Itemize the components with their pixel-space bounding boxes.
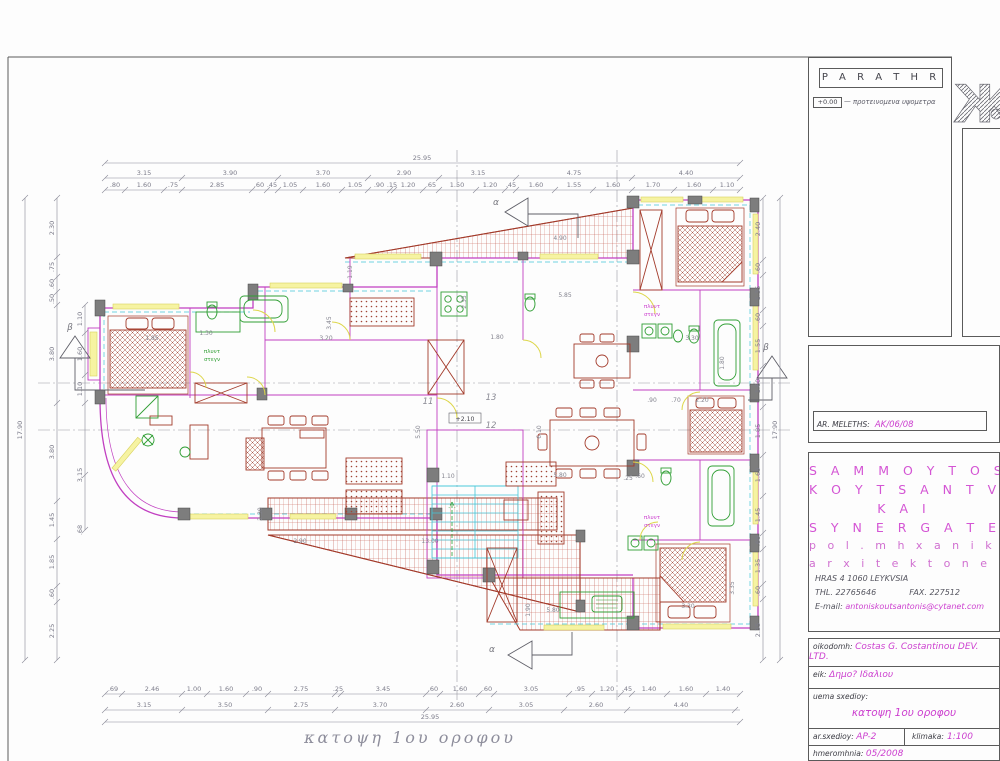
table-row-eik: eik: Δημο? Ιδαλιου [809, 667, 999, 689]
dim-row-right-overall: 17.90 [771, 421, 779, 440]
svg-text:2.35: 2.35 [461, 295, 468, 309]
svg-text:+2.10: +2.10 [456, 416, 475, 423]
svg-text:.45: .45 [506, 181, 516, 189]
svg-text:1.85: 1.85 [754, 424, 762, 438]
svg-text:5.85: 5.85 [558, 292, 572, 299]
firm-tel: THL. 22765646 [815, 588, 876, 597]
svg-text:2.35: 2.35 [754, 623, 762, 637]
toilet [207, 294, 699, 485]
svg-text:3.50: 3.50 [218, 701, 232, 709]
svg-text:.60: .60 [754, 313, 762, 323]
svg-text:β: β [66, 323, 73, 333]
svg-text:1.55: 1.55 [567, 181, 581, 189]
svg-text:.65: .65 [426, 181, 436, 189]
svg-text:1.85: 1.85 [48, 555, 56, 569]
svg-text:1.10: 1.10 [76, 382, 84, 396]
section-marker-alpha-bottom [508, 632, 572, 669]
svg-text:6.10: 6.10 [536, 425, 543, 439]
firm-name-line1: S A M M O Y T O S [809, 461, 999, 480]
meleths-panel: AR. MELETHS: AK/06/08 [808, 345, 1000, 443]
scale-value: 1:100 [947, 732, 973, 742]
dim-row-left-overall: 17.90 [16, 421, 24, 440]
svg-text:3.70: 3.70 [373, 701, 387, 709]
svg-text:.70: .70 [671, 397, 681, 404]
subject-label: uema sxedioy: [809, 689, 868, 701]
eik-label: eik: [809, 667, 827, 679]
svg-text:1.80: 1.80 [490, 334, 504, 341]
firm-profession-1: p o l . m h x a n i k o i [809, 537, 999, 555]
table-row-number-scale: ar.sxedioy: AP-2 klimaka: 1:100 [809, 729, 999, 746]
bed [688, 396, 744, 454]
table-row-date: hmeromhnia: 05/2008 [809, 746, 999, 761]
svg-text:1.05: 1.05 [348, 181, 362, 189]
svg-text:1.60: 1.60 [453, 685, 467, 693]
side-strip-panel [962, 128, 1000, 337]
svg-text:1.30: 1.30 [199, 330, 213, 337]
svg-text:1.35: 1.35 [754, 559, 762, 573]
svg-text:1.00: 1.00 [187, 685, 201, 693]
bed [676, 208, 744, 286]
elevation-symbol: +0.00 [813, 97, 842, 108]
svg-text:.60: .60 [48, 589, 56, 599]
svg-text:1.55: 1.55 [754, 339, 762, 353]
dim-row-top-1: 3.153.903.702.903.154.754.40 [137, 169, 693, 177]
svg-text:3.15: 3.15 [137, 701, 151, 709]
svg-text:στεγν: στεγν [204, 357, 220, 363]
svg-text:.90: .90 [374, 181, 384, 189]
svg-text:.60: .60 [754, 586, 762, 596]
svg-text:3.45: 3.45 [376, 685, 390, 693]
dim-row-bottom-2: 3.153.502.753.702.603.052.604.40 [137, 701, 688, 709]
svg-text:.60: .60 [254, 181, 264, 189]
svg-text:1.70: 1.70 [646, 181, 660, 189]
svg-text:1.05: 1.05 [283, 181, 297, 189]
firm-fax: FAX. 227512 [909, 588, 960, 597]
svg-text:3.80: 3.80 [48, 347, 56, 361]
svg-text:.25: .25 [333, 685, 343, 693]
cabinet [150, 416, 264, 470]
svg-text:12: 12 [486, 421, 497, 431]
svg-text:1.60: 1.60 [606, 181, 620, 189]
svg-text:.60: .60 [48, 279, 56, 289]
svg-text:13.00: 13.00 [421, 538, 438, 545]
svg-text:2.40: 2.40 [754, 222, 762, 236]
svg-text:πλυντ: πλυντ [644, 304, 661, 310]
svg-text:πλυντ: πλυντ [644, 515, 661, 521]
svg-text:1.20: 1.20 [600, 685, 614, 693]
dim-row-top-2: .801.60.752.85.60.451.051.601.05.90.151.… [110, 181, 734, 189]
svg-text:α: α [489, 645, 495, 655]
svg-text:1.90: 1.90 [525, 603, 532, 617]
drawing-sheet: α α β β [0, 0, 1000, 761]
firm-phone-fax: THL. 22765646 FAX. 227512 [809, 586, 999, 600]
svg-text:17.90: 17.90 [771, 421, 779, 440]
svg-text:4.40: 4.40 [679, 169, 693, 177]
svg-text:4.75: 4.75 [567, 169, 581, 177]
svg-text:1.60: 1.60 [137, 181, 151, 189]
svg-text:2.75: 2.75 [294, 701, 308, 709]
dim-row-bottom-overall: 25.95 [421, 713, 440, 721]
svg-text:στεγν: στεγν [644, 523, 660, 529]
svg-text:1.60: 1.60 [76, 347, 84, 361]
firm-name-line3: K A I [809, 499, 999, 518]
svg-text:2.60: 2.60 [450, 701, 464, 709]
svg-text:1.50: 1.50 [450, 181, 464, 189]
svg-text:.60: .60 [754, 263, 762, 273]
svg-text:.60: .60 [635, 473, 645, 480]
svg-text:1.60: 1.60 [679, 685, 693, 693]
meleths-value: AK/06/08 [875, 420, 914, 430]
svg-text:.75: .75 [48, 262, 56, 272]
svg-text:2.60: 2.60 [589, 701, 603, 709]
svg-text:1.60: 1.60 [754, 468, 762, 482]
svg-text:25.95: 25.95 [413, 154, 432, 162]
svg-text:1.40: 1.40 [716, 685, 730, 693]
dining-table [574, 334, 630, 388]
table-row-subject: uema sxedioy: κατοψη 1ου οροφου [809, 689, 999, 729]
firm-email-label: E-mail: [815, 602, 843, 611]
svg-text:.68: .68 [76, 525, 84, 535]
svg-text:3.90: 3.90 [223, 169, 237, 177]
firm-panel: S A M M O Y T O S K O Y T S A N T V N H … [808, 452, 1000, 632]
svg-text:.45: .45 [267, 181, 277, 189]
drawing-number-value: AP-2 [856, 732, 876, 742]
svg-text:17.90: 17.90 [16, 421, 24, 440]
svg-text:3.35: 3.35 [729, 581, 736, 595]
dim-row-bottom-1: .692.461.001.60.902.75.253.45.601.60.603… [108, 685, 730, 693]
eik-value: Δημο? Ιδαλιου [829, 670, 893, 680]
svg-text:1.45: 1.45 [48, 513, 56, 527]
firm-email: antoniskoutsantonis@cytanet.com [845, 602, 984, 611]
svg-text:1.45: 1.45 [754, 508, 762, 522]
building-label: oikodomh: [809, 639, 853, 651]
svg-text:.75: .75 [168, 181, 178, 189]
svg-text:1.85: 1.85 [145, 335, 159, 342]
svg-text:.80: .80 [110, 181, 120, 189]
svg-text:3.15: 3.15 [76, 468, 84, 482]
svg-text:1.10: 1.10 [720, 181, 734, 189]
svg-text:3.15: 3.15 [137, 169, 151, 177]
elevation-note: — προτεινομενα υψομετρα [844, 98, 935, 106]
svg-text:3.15: 3.15 [471, 169, 485, 177]
svg-text:.45: .45 [622, 685, 632, 693]
svg-text:3.45: 3.45 [326, 316, 333, 330]
svg-text:13: 13 [486, 393, 497, 403]
notes-panel-title: P A R A T H R H S E I S [819, 68, 943, 88]
meleths-box: AR. MELETHS: AK/06/08 [813, 411, 987, 431]
sofa [350, 298, 414, 326]
svg-text:2.30: 2.30 [48, 221, 56, 235]
firm-profession-2: a r x i t e k t o n e s [809, 555, 999, 573]
svg-text:1.60: 1.60 [687, 181, 701, 189]
svg-text:3.70: 3.70 [316, 169, 330, 177]
svg-text:1.10: 1.10 [441, 473, 455, 480]
svg-text:4.90: 4.90 [553, 235, 567, 242]
svg-text:στεγν: στεγν [644, 312, 660, 318]
svg-text:1.35: 1.35 [754, 286, 762, 300]
svg-text:2.20: 2.20 [695, 397, 709, 404]
dim-row-top-overall: 25.95 [413, 154, 432, 162]
firm-name-line4: S Y N E R G A T E S [809, 518, 999, 537]
dim-row-left-1: 2.30.75.60.503.803.801.451.85.602.25 [48, 221, 56, 638]
svg-text:1.60: 1.60 [754, 379, 762, 393]
svg-text:2.30: 2.30 [257, 507, 264, 521]
svg-text:.15: .15 [387, 181, 397, 189]
svg-text:1.10: 1.10 [76, 312, 84, 326]
svg-text:2.46: 2.46 [145, 685, 159, 693]
meleths-label: AR. MELETHS: [814, 420, 870, 429]
svg-text:.95: .95 [575, 685, 585, 693]
svg-text:Ж: Ж [953, 75, 1000, 135]
svg-text:α: α [493, 198, 499, 208]
svg-text:3.05: 3.05 [524, 685, 538, 693]
svg-text:2.85: 2.85 [210, 181, 224, 189]
drawing-number-label: ar.sxedioy: [809, 729, 854, 741]
dim-row-left-2: 1.101.601.103.15.68 [76, 312, 84, 535]
notes-panel: P A R A T H R H S E I S +0.00 — προτεινο… [808, 57, 952, 337]
drawing-caption: κατοψη 1ου οροφου [300, 728, 520, 747]
columns [95, 196, 759, 630]
firm-logo-icon: Ж [953, 75, 1000, 135]
bed [656, 544, 730, 622]
table-row-building: oikodomh: Costas G. Costantinou DEV. LTD… [809, 639, 999, 667]
bed [108, 316, 188, 394]
svg-text:11: 11 [423, 397, 434, 407]
firm-email-row: E-mail: antoniskoutsantonis@cytanet.com [809, 600, 999, 614]
shower [136, 396, 158, 418]
svg-text:2.90: 2.90 [293, 538, 307, 545]
bathtub [240, 296, 740, 526]
svg-text:4.40: 4.40 [674, 701, 688, 709]
svg-text:.60: .60 [754, 536, 762, 546]
scale-label: klimaka: [908, 729, 944, 741]
title-table: oikodomh: Costas G. Costantinou DEV. LTD… [808, 638, 1000, 761]
svg-text:.25: .25 [623, 475, 633, 482]
svg-text:1.20: 1.20 [483, 181, 497, 189]
svg-text:.50: .50 [48, 294, 56, 304]
svg-text:2.75: 2.75 [294, 685, 308, 693]
svg-text:5.80: 5.80 [553, 472, 567, 479]
subject-value: κατοψη 1ου οροφου [809, 707, 999, 719]
dining-table [262, 416, 328, 480]
svg-text:5.80: 5.80 [546, 607, 560, 614]
svg-text:.69: .69 [108, 685, 118, 693]
svg-text:.60: .60 [428, 685, 438, 693]
plant [142, 434, 190, 457]
svg-text:1.40: 1.40 [642, 685, 656, 693]
svg-text:5.50: 5.50 [415, 425, 422, 439]
date-label: hmeromhnia: [809, 746, 863, 758]
svg-text:.90: .90 [647, 397, 657, 404]
svg-text:2.25: 2.25 [48, 624, 56, 638]
svg-text:1.60: 1.60 [316, 181, 330, 189]
svg-text:πλυντ: πλυντ [204, 349, 221, 355]
svg-text:1.20: 1.20 [401, 181, 415, 189]
date-value: 05/2008 [866, 749, 903, 759]
svg-text:3.80: 3.80 [48, 445, 56, 459]
svg-text:3.30: 3.30 [685, 335, 699, 342]
svg-text:3.05: 3.05 [519, 701, 533, 709]
svg-text:2.90: 2.90 [397, 169, 411, 177]
svg-text:25.95: 25.95 [421, 713, 440, 721]
svg-text:1.19: 1.19 [347, 265, 354, 279]
firm-address: HRAS 4 1060 LEYKVSIA [809, 572, 999, 586]
svg-text:1.80: 1.80 [719, 356, 726, 370]
svg-text:1.60: 1.60 [219, 685, 233, 693]
svg-text:3.30: 3.30 [681, 603, 695, 610]
svg-text:.60: .60 [482, 685, 492, 693]
svg-text:1.60: 1.60 [529, 181, 543, 189]
firm-name-line2: K O Y T S A N T V N H [809, 480, 999, 499]
svg-text:.90: .90 [252, 685, 262, 693]
svg-text:3.20: 3.20 [319, 335, 333, 342]
